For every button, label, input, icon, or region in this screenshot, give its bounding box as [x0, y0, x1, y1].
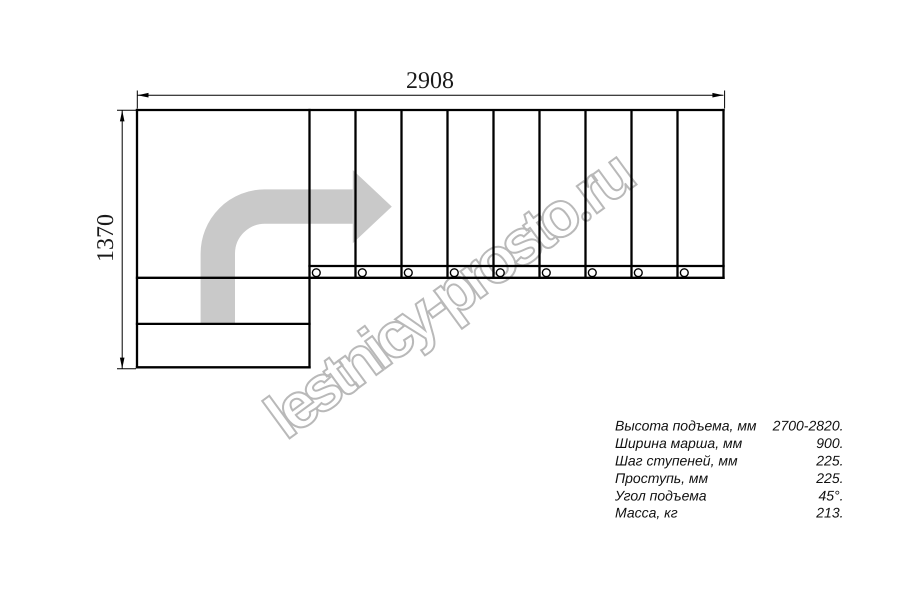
svg-text:225.: 225. [815, 453, 843, 469]
svg-text:225.: 225. [815, 470, 843, 486]
svg-text:213.: 213. [815, 505, 843, 521]
svg-text:Угол подъема: Угол подъема [614, 487, 707, 503]
svg-text:2908: 2908 [406, 68, 454, 94]
svg-text:2700-2820.: 2700-2820. [772, 418, 844, 434]
svg-text:Ширина марша, мм: Ширина марша, мм [615, 435, 743, 451]
svg-text:Шаг ступеней, мм: Шаг ступеней, мм [615, 453, 738, 469]
svg-text:900.: 900. [816, 435, 843, 451]
svg-text:1370: 1370 [93, 214, 119, 262]
svg-text:Проступь, мм: Проступь, мм [615, 470, 709, 486]
svg-text:45°.: 45°. [818, 487, 843, 503]
svg-text:Масса, кг: Масса, кг [615, 505, 678, 521]
svg-text:Высота подъема, мм: Высота подъема, мм [615, 418, 757, 434]
